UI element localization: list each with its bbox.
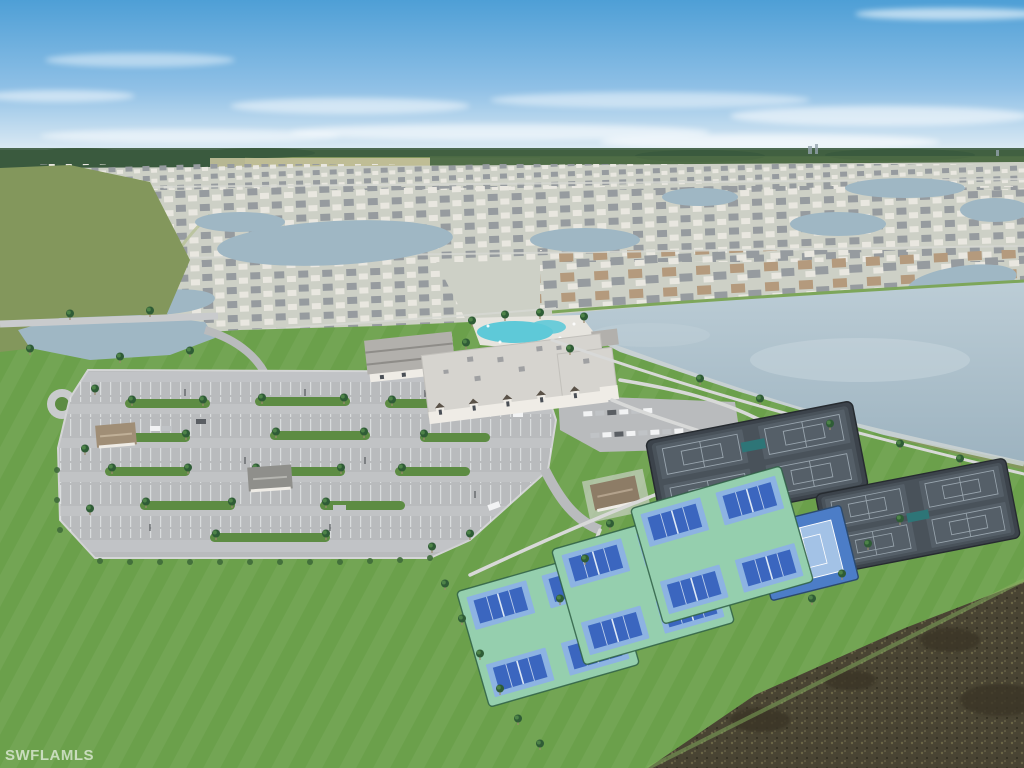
- aerial-photo: SWFLAMLS: [0, 0, 1024, 768]
- aerial-photo-canvas: [0, 0, 1024, 768]
- pavilion-west: [95, 422, 137, 448]
- sky: [0, 0, 1024, 160]
- pavilion-center: [247, 464, 293, 492]
- lake-reflection: [750, 338, 970, 382]
- watermark-swflamls: SWFLAMLS: [5, 747, 94, 764]
- entry-portico: [600, 385, 620, 401]
